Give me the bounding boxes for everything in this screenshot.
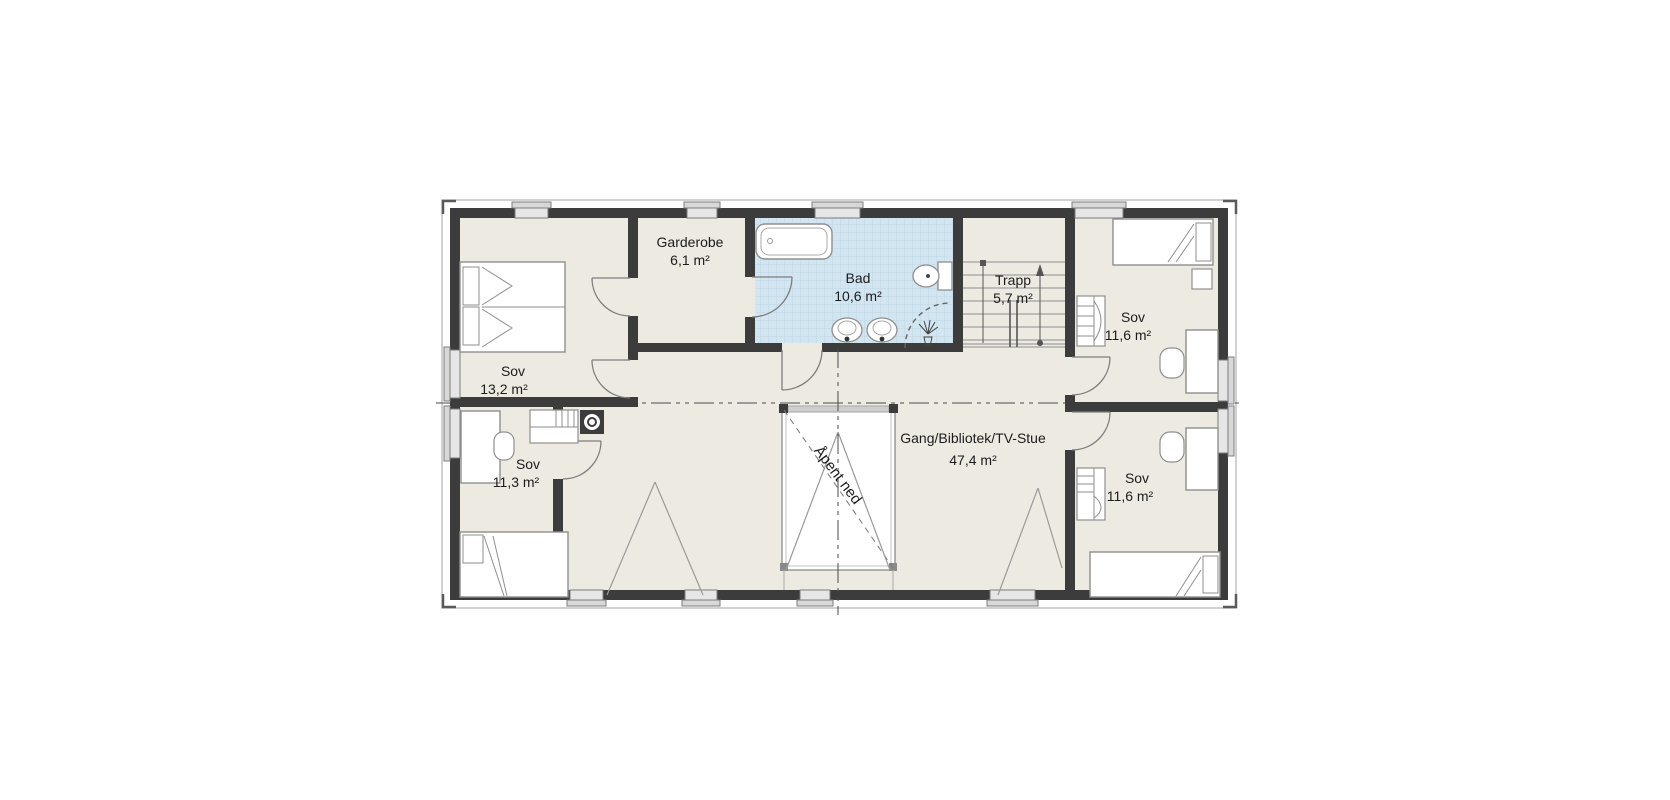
window	[684, 202, 720, 218]
desk	[1186, 428, 1218, 490]
label-sov-nw: Sov	[501, 363, 525, 379]
window	[444, 406, 460, 461]
label-sov-se: Sov	[1125, 470, 1149, 486]
window	[812, 202, 863, 218]
chimney	[580, 410, 604, 434]
window	[1072, 202, 1126, 218]
window	[1218, 357, 1234, 404]
dresser	[1077, 296, 1105, 346]
chair	[494, 432, 514, 460]
single-bed	[1113, 219, 1213, 265]
label-gang: Gang/Bibliotek/TV-Stue	[900, 430, 1046, 446]
label-bad-area: 10,6 m²	[834, 288, 882, 304]
washbasin	[832, 318, 862, 342]
window	[682, 590, 720, 606]
dresser	[1077, 468, 1105, 520]
single-bed	[460, 532, 568, 597]
label-garderobe: Garderobe	[657, 234, 724, 250]
chair	[1160, 432, 1184, 462]
label-sov-ne-area: 11,6 m²	[1105, 327, 1152, 343]
label-sov-se-area: 11,6 m²	[1107, 488, 1154, 504]
bathtub	[756, 224, 832, 259]
label-sov-sw-area: 11,3 m²	[493, 474, 540, 490]
label-garderobe-area: 6,1 m²	[670, 252, 710, 268]
label-bad: Bad	[846, 270, 871, 286]
floor-plan-page: Sov 13,2 m² Garderobe 6,1 m² Bad 10,6 m²…	[0, 0, 1670, 800]
chair	[1160, 348, 1184, 378]
label-sov-nw-area: 13,2 m²	[480, 381, 528, 397]
toilet	[913, 262, 952, 290]
wardrobe	[530, 410, 578, 443]
window	[797, 590, 833, 606]
window	[512, 202, 551, 218]
label-sov-sw: Sov	[516, 456, 540, 472]
label-trapp: Trapp	[995, 272, 1031, 288]
label-trapp-area: 5,7 m²	[993, 290, 1033, 306]
window	[987, 590, 1038, 606]
sov-nw-furniture	[460, 262, 565, 352]
label-gang-area: 47,4 m²	[949, 452, 997, 468]
floor-plan-drawing: Sov 13,2 m² Garderobe 6,1 m² Bad 10,6 m²…	[0, 0, 1670, 800]
window	[1218, 406, 1234, 456]
double-bed	[460, 262, 565, 352]
nightstand	[1192, 269, 1212, 289]
label-sov-ne: Sov	[1121, 309, 1145, 325]
washbasin	[867, 318, 897, 342]
single-bed	[1090, 552, 1220, 597]
window	[567, 590, 606, 606]
window	[444, 347, 460, 401]
desk	[1186, 330, 1218, 393]
